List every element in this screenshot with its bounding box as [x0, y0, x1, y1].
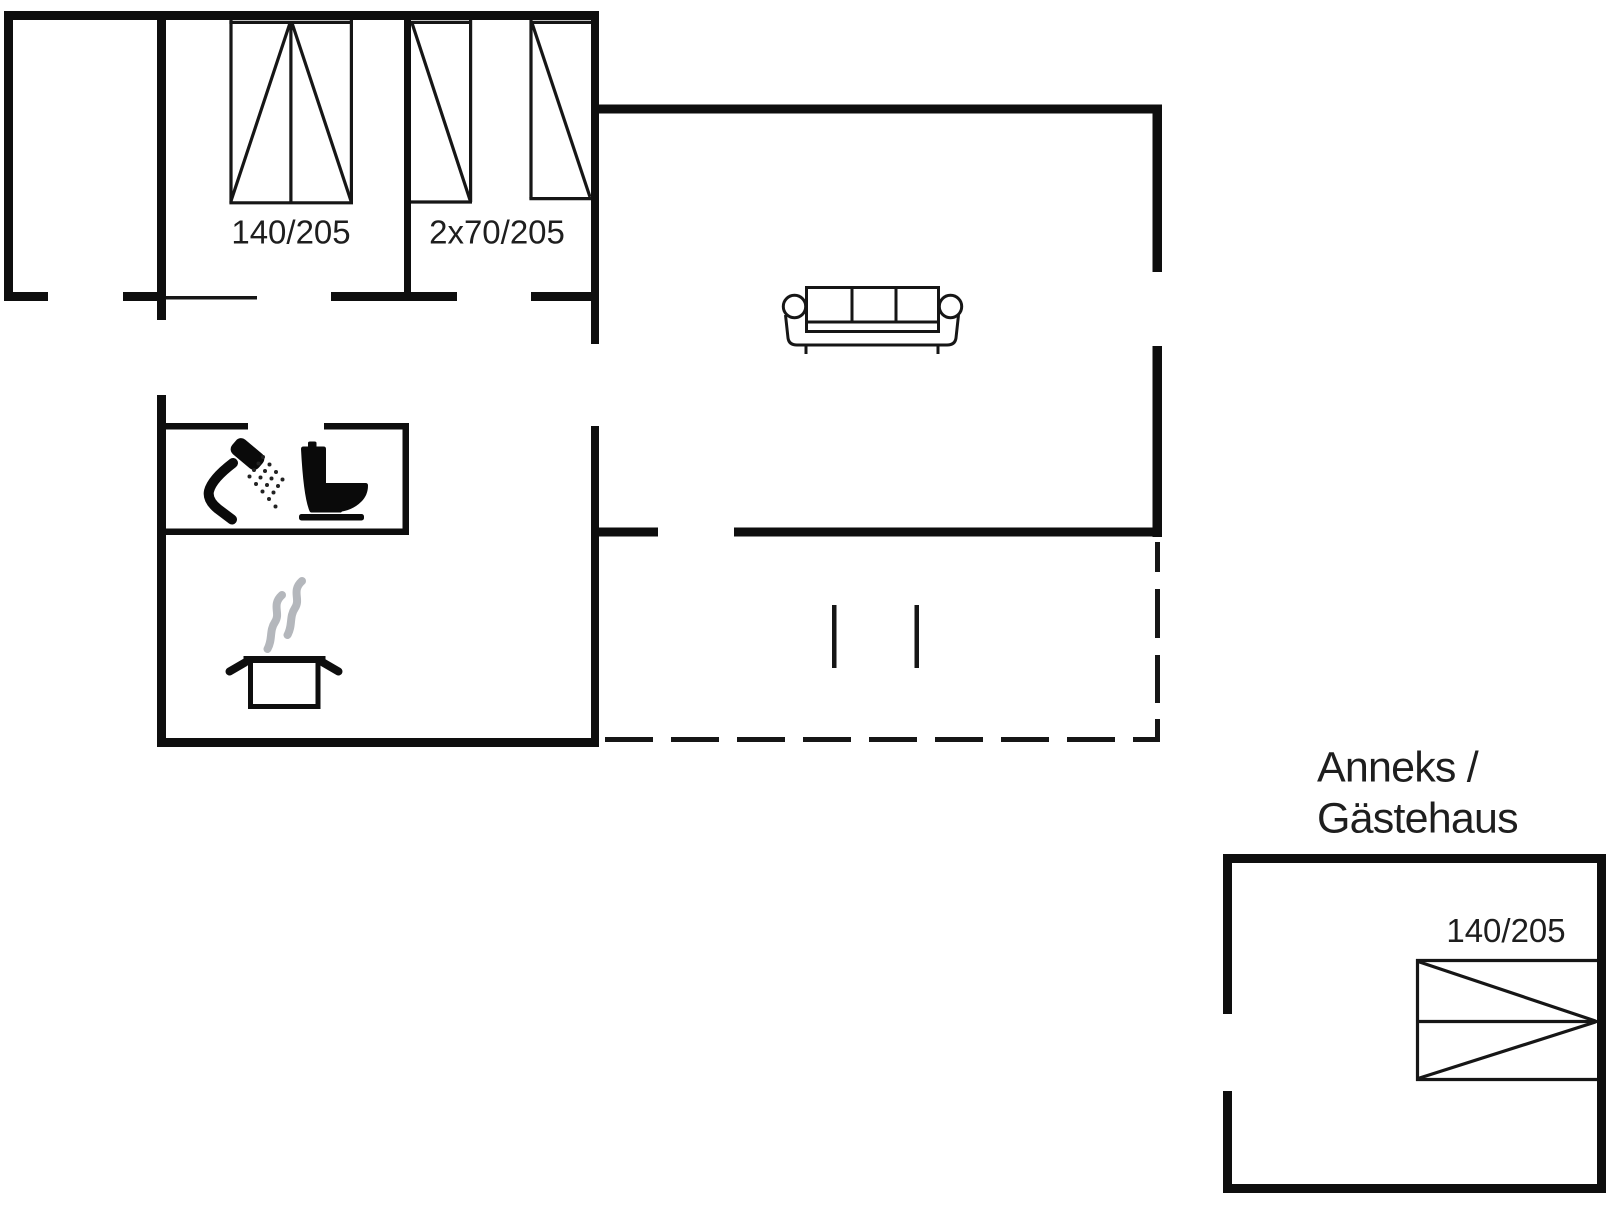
svg-text:Gästehaus: Gästehaus [1317, 794, 1518, 842]
svg-text:Anneks /: Anneks / [1317, 744, 1479, 792]
svg-text:140/205: 140/205 [231, 214, 350, 251]
svg-text:2x70/205: 2x70/205 [429, 214, 565, 251]
svg-text:140/205: 140/205 [1446, 912, 1565, 949]
